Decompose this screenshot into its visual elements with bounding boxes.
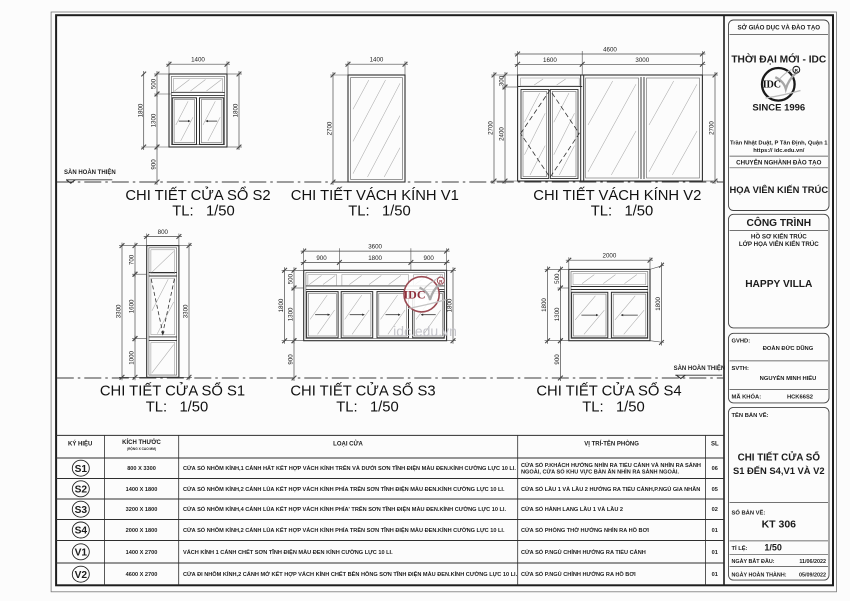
- svg-text:CHI TIẾT CỬA SỔ: CHI TIẾT CỬA SỔ: [738, 452, 821, 464]
- svg-text:NGUYỄN MINH HIẾU: NGUYỄN MINH HIẾU: [760, 375, 817, 382]
- svg-text:01: 01: [712, 572, 718, 578]
- svg-text:HỌA VIÊN KIẾN TRÚC: HỌA VIÊN KIẾN TRÚC: [729, 184, 828, 195]
- svg-text:CỬA SỔ PHÒNG THỜ HƯỚNG NHÌN RA: CỬA SỔ PHÒNG THỜ HƯỚNG NHÌN RA HỒ BƠI: [521, 526, 649, 534]
- svg-text:IDC: IDC: [763, 79, 781, 90]
- svg-text:1300: 1300: [151, 113, 158, 127]
- svg-text:S3: S3: [75, 505, 88, 516]
- svg-text:VỊ TRÍ-TÊN PHÒNG: VỊ TRÍ-TÊN PHÒNG: [584, 439, 639, 447]
- svg-text:CÔNG TRÌNH: CÔNG TRÌNH: [747, 216, 812, 229]
- svg-text:1800: 1800: [233, 103, 240, 117]
- svg-text:1800: 1800: [278, 298, 285, 312]
- svg-text:HAPPY VILLA: HAPPY VILLA: [745, 279, 813, 290]
- svg-text:300: 300: [499, 75, 506, 86]
- svg-text:GVHD:: GVHD:: [732, 338, 751, 344]
- svg-text:2000 X 1800: 2000 X 1800: [126, 528, 158, 534]
- svg-text:1400 X 1800: 1400 X 1800: [126, 487, 158, 493]
- svg-text:900: 900: [554, 354, 561, 365]
- svg-text:SINCE 1996: SINCE 1996: [752, 103, 805, 114]
- svg-text:https:​// idc.edu.vn/: https:​// idc.edu.vn/: [753, 148, 805, 154]
- svg-text:01: 01: [712, 550, 718, 556]
- svg-text:TL: 1/50: TL: 1/50: [172, 203, 235, 219]
- svg-text:NGÀY BẮT ĐẦU:: NGÀY BẮT ĐẦU:: [732, 557, 775, 565]
- svg-text:S4: S4: [75, 526, 88, 537]
- svg-text:3200 X 1800: 3200 X 1800: [126, 507, 158, 513]
- svg-text:LỚP HỌA VIÊN KIẾN TRÚC: LỚP HỌA VIÊN KIẾN TRÚC: [739, 240, 819, 248]
- svg-text:1800: 1800: [368, 255, 382, 262]
- svg-text:KT 306: KT 306: [762, 519, 797, 531]
- svg-text:CỬA SỔ P.KHÁCH HƯỚNG NHÌN RA T: CỬA SỔ P.KHÁCH HƯỚNG NHÌN RA TIỂU CẢNH V…: [521, 461, 701, 469]
- svg-text:CHI TIẾT CỬA SỔ S1: CHI TIẾT CỬA SỔ S1: [100, 382, 245, 400]
- svg-text:CHI TIẾT CỬA SỔ S4: CHI TIẾT CỬA SỔ S4: [536, 382, 681, 400]
- svg-text:4600 X 2700: 4600 X 2700: [126, 572, 158, 578]
- svg-text:1600: 1600: [129, 299, 136, 313]
- svg-text:SỞ GIÁO DỤC VÀ ĐÀO TẠO: SỞ GIÁO DỤC VÀ ĐÀO TẠO: [737, 25, 820, 32]
- svg-text:900: 900: [151, 159, 158, 170]
- svg-text:CHI TIẾT CỬA SỔ S2: CHI TIẾT CỬA SỔ S2: [125, 186, 270, 204]
- svg-text:1800: 1800: [137, 103, 144, 117]
- svg-text:CỬA SỔ NHÔM KÍNH,1 CÁNH HẤT KẾ: CỬA SỔ NHÔM KÍNH,1 CÁNH HẤT KẾT HỢP VÁCH…: [183, 464, 516, 472]
- svg-text:SL: SL: [711, 441, 719, 447]
- svg-text:500: 500: [554, 273, 561, 284]
- svg-text:1300: 1300: [288, 307, 295, 321]
- svg-text:TL: 1/50: TL: 1/50: [591, 203, 654, 219]
- svg-text:CHI TIẾT VÁCH KÍNH V1: CHI TIẾT VÁCH KÍNH V1: [291, 187, 459, 204]
- svg-text:06: 06: [712, 466, 718, 472]
- svg-text:S2: S2: [75, 484, 88, 495]
- svg-text:ĐOÀN ĐỨC DŨNG: ĐOÀN ĐỨC DŨNG: [763, 345, 814, 352]
- svg-text:500: 500: [288, 273, 295, 284]
- svg-text:CỬA SỔ P.NGỦ CHÍNH HƯỚNG RA HỒ: CỬA SỔ P.NGỦ CHÍNH HƯỚNG RA HỒ BƠI: [521, 570, 636, 578]
- svg-text:TL: 1/50: TL: 1/50: [582, 400, 645, 416]
- svg-text:HỒ SƠ KIẾN TRÚC: HỒ SƠ KIẾN TRÚC: [751, 233, 807, 240]
- svg-text:2700: 2700: [327, 121, 334, 135]
- svg-text:01: 01: [712, 528, 718, 534]
- svg-text:LOẠI CỬA: LOẠI CỬA: [333, 440, 363, 447]
- svg-text:1400: 1400: [370, 57, 384, 64]
- svg-text:700: 700: [129, 254, 136, 265]
- svg-text:500: 500: [151, 78, 158, 89]
- svg-text:3300: 3300: [116, 304, 123, 318]
- svg-text:TL: 1/50: TL: 1/50: [146, 400, 209, 416]
- svg-text:MÃ KHÓA:: MÃ KHÓA:: [732, 393, 762, 401]
- svg-text:1000: 1000: [129, 350, 136, 364]
- svg-text:THỜI ĐẠI MỚI - IDC: THỜI ĐẠI MỚI - IDC: [731, 53, 827, 66]
- svg-text:05/09/2022: 05/09/2022: [799, 572, 826, 578]
- svg-text:VÁCH KÍNH 1 CÁNH CHẾT SƠN TĨNH: VÁCH KÍNH 1 CÁNH CHẾT SƠN TĨNH ĐIỆN MÀU …: [183, 548, 393, 556]
- svg-text:900: 900: [424, 255, 435, 262]
- svg-text:800: 800: [158, 229, 169, 236]
- svg-text:CHI TIẾT VÁCH KÍNH V2: CHI TIẾT VÁCH KÍNH V2: [533, 187, 701, 204]
- svg-text:CỬA SỔ NHÔM KÍNH,2 CÁNH LÙA KẾ: CỬA SỔ NHÔM KÍNH,2 CÁNH LÙA KẾT HỢP VÁCH…: [183, 485, 505, 493]
- svg-text:2000: 2000: [603, 253, 617, 260]
- svg-text:V1: V1: [75, 547, 88, 558]
- svg-text:1800: 1800: [541, 298, 548, 312]
- svg-text:900: 900: [316, 255, 327, 262]
- svg-text:V2: V2: [75, 570, 88, 581]
- svg-text:TL: 1/50: TL: 1/50: [348, 203, 411, 219]
- svg-text:3600: 3600: [368, 244, 382, 251]
- svg-text:TỈ LỆ:: TỈ LỆ:: [732, 544, 748, 552]
- svg-text:NGOÀI, CỬA SỔ KHU VỰC BÀN ĂN N: NGOÀI, CỬA SỔ KHU VỰC BÀN ĂN NHÌN RA SẢN…: [521, 467, 679, 475]
- svg-text:idc.edu.vn: idc.edu.vn: [393, 323, 457, 339]
- svg-text:11/06/2022: 11/06/2022: [799, 559, 826, 565]
- svg-text:1600: 1600: [543, 57, 557, 64]
- svg-text:S1 ĐẾN S4,V1 VÀ V2: S1 ĐẾN S4,V1 VÀ V2: [733, 465, 825, 476]
- svg-text:1300: 1300: [554, 307, 561, 321]
- svg-text:CỬA ĐI NHÔM KÍNH,2 CÁNH MỞ KẾT: CỬA ĐI NHÔM KÍNH,2 CÁNH MỞ KẾT HỢP VÁCH …: [183, 570, 518, 578]
- svg-text:CỬA SỔ NHÔM KÍNH,4 CÁNH LÙA KẾ: CỬA SỔ NHÔM KÍNH,4 CÁNH LÙA KẾT HỢP VÁCH…: [183, 505, 506, 513]
- svg-text:2700: 2700: [488, 121, 495, 135]
- svg-text:TL: 1/50: TL: 1/50: [336, 400, 399, 416]
- svg-text:KÝ HIỆU: KÝ HIỆU: [68, 439, 92, 447]
- svg-text:KÍCH THƯỚC: KÍCH THƯỚC: [122, 438, 161, 446]
- svg-text:S1: S1: [75, 464, 88, 475]
- svg-text:2400: 2400: [499, 127, 506, 141]
- svg-text:CỬA SỔ NHÔM KÍNH,2 CÁNH LÙA KẾ: CỬA SỔ NHÔM KÍNH,2 CÁNH LÙA KẾT HỢP VÁCH…: [183, 526, 505, 534]
- svg-text:Trần Nhật Duật, P Tân Định, Qu: Trần Nhật Duật, P Tân Định, Quận 1: [730, 141, 828, 147]
- svg-text:SVTH:: SVTH:: [732, 366, 749, 372]
- svg-text:1800: 1800: [447, 298, 454, 312]
- svg-text:IDC: IDC: [403, 288, 425, 302]
- svg-text:SÀN HOÀN THIỆN: SÀN HOÀN THIỆN: [64, 168, 116, 176]
- svg-text:1800: 1800: [655, 296, 662, 310]
- svg-text:1/50: 1/50: [764, 543, 782, 553]
- svg-text:CHI TIẾT CỬA SỔ S3: CHI TIẾT CỬA SỔ S3: [290, 382, 435, 400]
- svg-text:3300: 3300: [183, 304, 190, 318]
- svg-text:05: 05: [712, 487, 718, 493]
- svg-text:CỬA SỔ P.NGỦ CHÍNH HƯỚNG RA T: CỬA SỔ P.NGỦ CHÍNH HƯỚNG RA TIỂU CẢNH: [521, 548, 646, 556]
- svg-text:2700: 2700: [709, 121, 716, 135]
- svg-text:900: 900: [288, 354, 295, 365]
- svg-text:CỬA SỔ LẦU 1 VÀ LẦU 2 HƯỚNG R: CỬA SỔ LẦU 1 VÀ LẦU 2 HƯỚNG RA TIỂU CẢNH…: [521, 485, 700, 493]
- svg-text:4600: 4600: [603, 46, 617, 53]
- svg-text:NGÀY HOÀN THÀNH:: NGÀY HOÀN THÀNH:: [732, 571, 787, 578]
- svg-text:3000: 3000: [635, 57, 649, 64]
- svg-text:HCK66S2: HCK66S2: [787, 395, 813, 401]
- svg-text:CHUYÊN NGHÀNH ĐÀO TẠO: CHUYÊN NGHÀNH ĐÀO TẠO: [736, 158, 821, 166]
- svg-text:SÀN HOÀN THIỆN: SÀN HOÀN THIỆN: [674, 364, 726, 372]
- svg-text:1400 X 2700: 1400 X 2700: [126, 550, 158, 556]
- svg-text:1400: 1400: [191, 57, 205, 64]
- svg-text:02: 02: [712, 507, 718, 513]
- svg-text:800 X 3300: 800 X 3300: [127, 466, 156, 472]
- svg-text:TÊN BẢN VẼ:: TÊN BẢN VẼ:: [732, 411, 769, 419]
- svg-text:CỬA SỔ HÀNH LANG LẦU 1 VÀ LẦU: CỬA SỔ HÀNH LANG LẦU 1 VÀ LẦU 2: [521, 506, 623, 513]
- svg-text:(RỘNG X CAO MM): (RỘNG X CAO MM): [127, 446, 156, 451]
- svg-text:SỐ BẢN VẼ:: SỐ BẢN VẼ:: [732, 510, 766, 517]
